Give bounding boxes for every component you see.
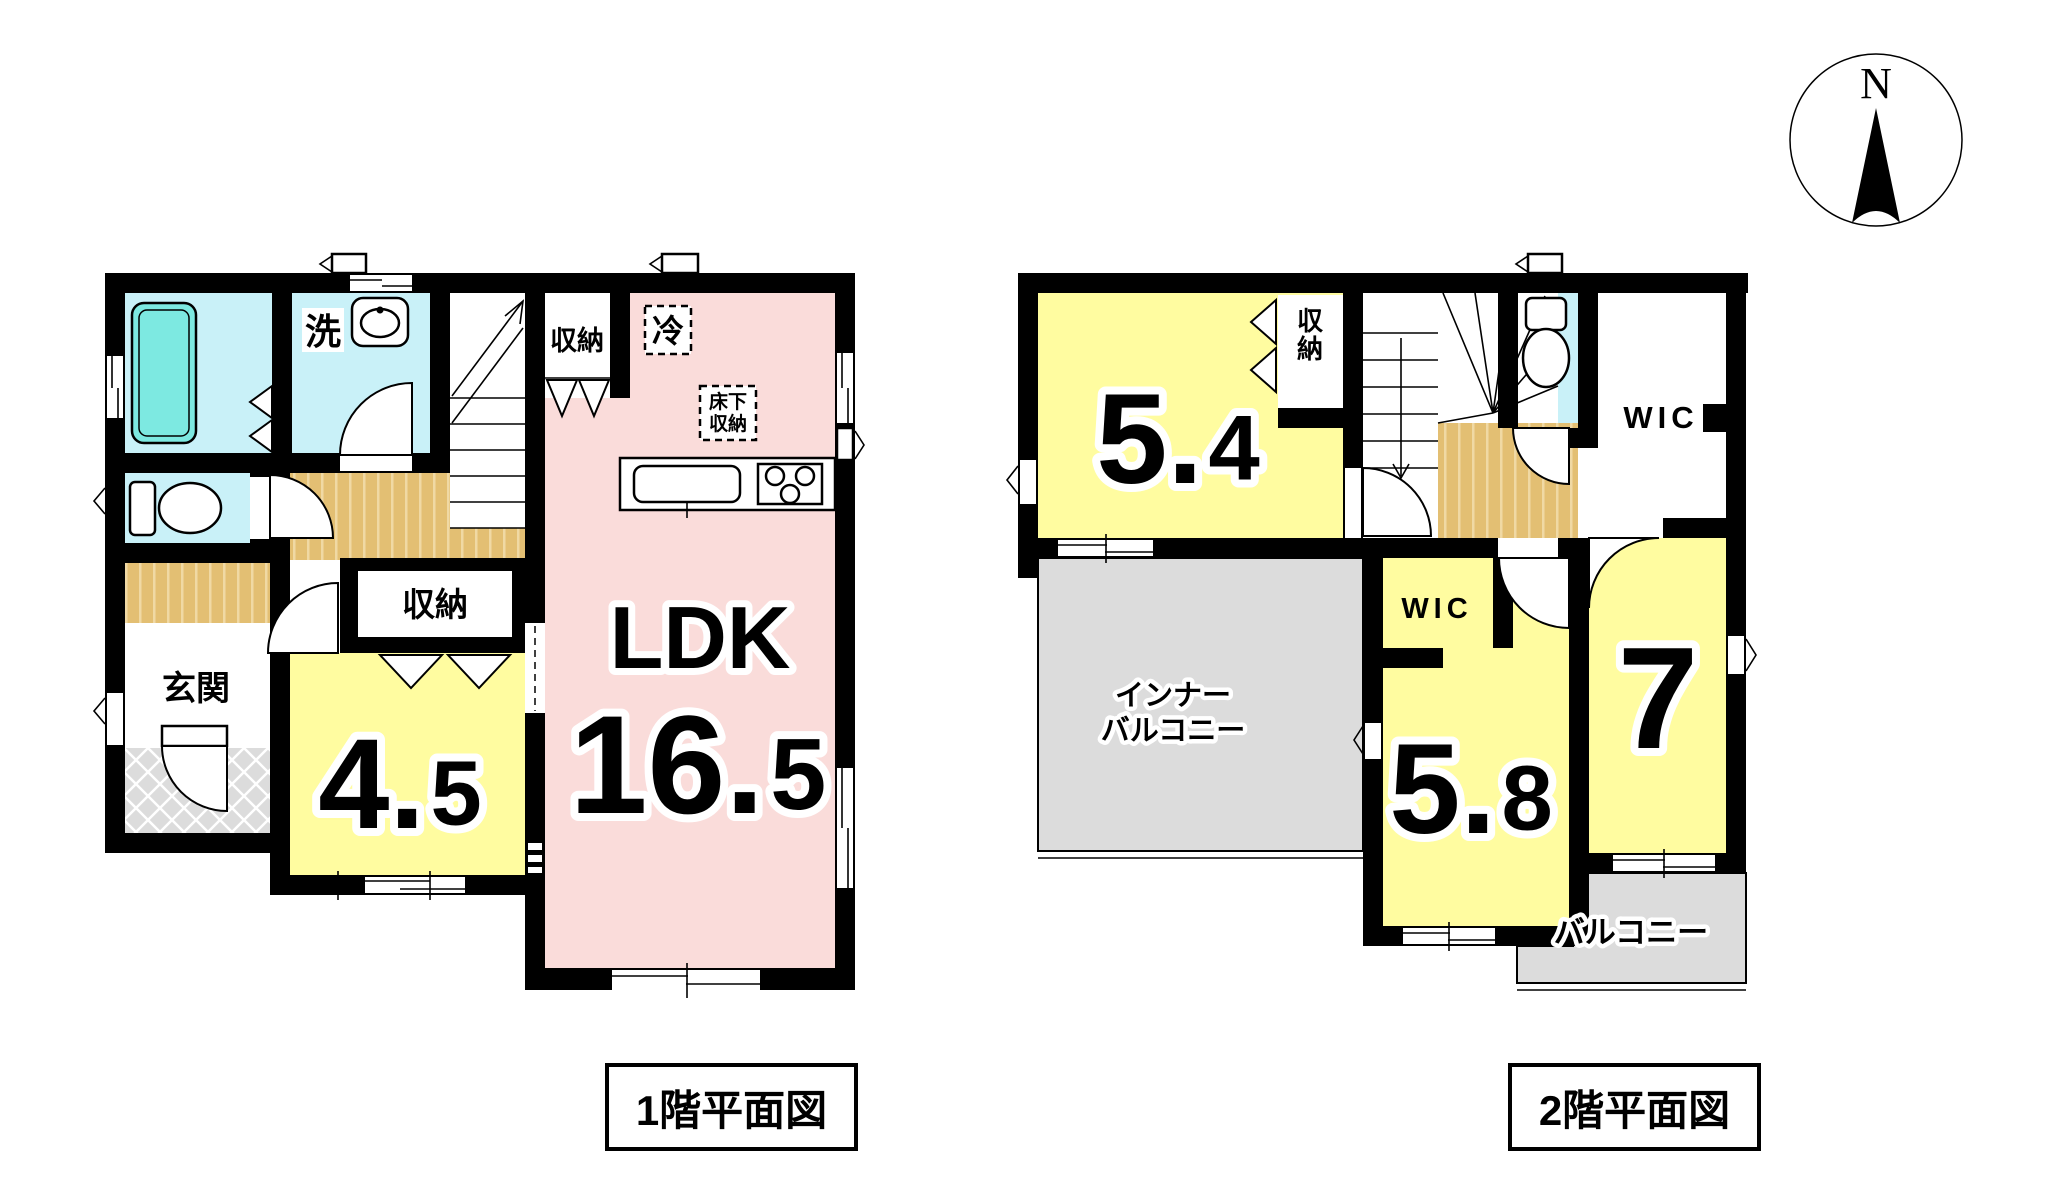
kitchen-counter-icon <box>620 458 835 518</box>
north-label: N <box>1860 59 1892 108</box>
floor1-plan: 収納 収納 <box>100 268 862 1003</box>
ldk-name: LDK <box>610 588 791 687</box>
north-compass: N <box>1789 50 1969 235</box>
underfloor-storage-label: 収納 <box>709 412 747 435</box>
floor1-title: 1階平面図 <box>605 1063 858 1151</box>
sink-icon <box>352 298 408 346</box>
closet-mid-label: 収納 <box>402 586 468 623</box>
toilet-icon <box>130 482 221 535</box>
closet-2f-label: 収納 <box>1297 306 1324 364</box>
floor-plan-page: 収納 収納 <box>0 0 2057 1201</box>
laundry-label: 洗 <box>302 308 344 352</box>
floor2-plan: 収納 <box>1013 268 1775 1003</box>
fridge-label: 冷 <box>652 313 684 349</box>
toilet-icon <box>1523 298 1569 387</box>
inner-balcony-label: バルコニー <box>1101 715 1245 747</box>
stairs-icon <box>450 293 525 528</box>
floor2-title: 2階平面図 <box>1508 1063 1761 1151</box>
balcony-label: バルコニー <box>1554 915 1708 950</box>
closet-top: 収納 <box>545 293 610 416</box>
wic-mid: WIC <box>1401 593 1472 625</box>
entrance-label: 玄関 <box>162 670 230 708</box>
stove-icon <box>758 464 822 504</box>
fridge-space: 冷 <box>645 306 691 354</box>
underfloor-storage: 床下 収納 <box>700 386 756 440</box>
inner-balcony-label: インナー <box>1115 680 1231 712</box>
svg-text:洗: 洗 <box>305 311 341 352</box>
room7-size: 7 <box>1618 617 1699 779</box>
underfloor-storage-label: 床下 <box>709 390 747 413</box>
svg-text:WIC: WIC <box>1401 593 1472 625</box>
closet-top-label: 収納 <box>550 325 604 356</box>
wic-top-label: WIC <box>1623 400 1698 435</box>
bathtub-icon <box>132 303 196 443</box>
